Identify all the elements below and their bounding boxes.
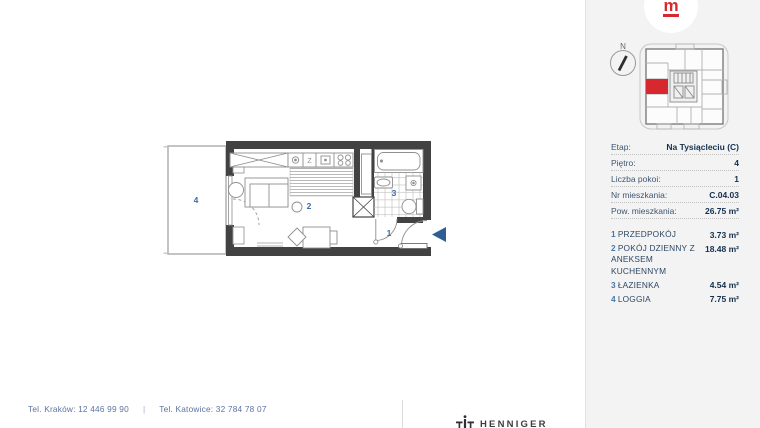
info-row-etap: Etap: Na Tysiącleciu (C) bbox=[611, 139, 739, 155]
henniger-emblem-icon bbox=[455, 415, 475, 428]
room-name: 4LOGGIA bbox=[611, 294, 699, 305]
room-label-hall: 1 bbox=[387, 228, 392, 238]
brand-logo-circle: m bbox=[644, 0, 698, 33]
footer-contacts: Tel. Kraków: 12 446 99 90 | Tel. Katowic… bbox=[28, 404, 267, 414]
phone-krakow: Tel. Kraków: 12 446 99 90 bbox=[28, 404, 129, 414]
info-value: C.04.03 bbox=[709, 190, 739, 200]
room-row: 1PRZEDPOKÓJ 3.73 m² bbox=[611, 229, 739, 240]
apartment-card-page: Z bbox=[0, 0, 760, 428]
stool bbox=[292, 202, 302, 212]
phone-separator: | bbox=[143, 404, 145, 414]
info-row-nr-mieszkania: Nr mieszkania: C.04.03 bbox=[611, 187, 739, 203]
sofa bbox=[245, 178, 288, 207]
toilet bbox=[402, 199, 423, 214]
info-row-pow-mieszkania: Pow. mieszkania: 26.75 m² bbox=[611, 203, 739, 219]
kitchen-annex-floor bbox=[290, 168, 353, 196]
wardrobe bbox=[230, 153, 288, 167]
info-label: Liczba pokoi: bbox=[611, 174, 661, 184]
room-number: 1 bbox=[611, 229, 616, 239]
desk bbox=[303, 227, 337, 248]
washbasin bbox=[375, 177, 393, 188]
threshold-lines bbox=[257, 243, 283, 246]
room-name: 1PRZEDPOKÓJ bbox=[611, 229, 699, 240]
info-panel: m N bbox=[585, 0, 760, 428]
room-number: 3 bbox=[611, 280, 616, 290]
floor-plan: Z bbox=[160, 128, 460, 268]
phone-katowice: Tel. Katowice: 32 784 78 07 bbox=[159, 404, 266, 414]
room-number: 2 bbox=[611, 243, 616, 253]
kitchen-sink-label: Z bbox=[307, 158, 312, 165]
info-value: 26.75 m² bbox=[705, 206, 739, 216]
bathtub bbox=[375, 150, 424, 173]
info-label: Pow. mieszkania: bbox=[611, 206, 677, 216]
room-name: 3ŁAZIENKA bbox=[611, 280, 699, 291]
bathroom-door bbox=[374, 219, 397, 244]
info-value: 1 bbox=[734, 174, 739, 184]
building-site-plan: N bbox=[594, 36, 736, 134]
room-name: 2POKÓJ DZIENNY Z ANEKSEM KUCHENNYM bbox=[611, 243, 699, 277]
highlighted-unit bbox=[646, 79, 668, 94]
room-area: 3.73 m² bbox=[710, 229, 739, 240]
henniger-logo: HENNIGER bbox=[455, 415, 548, 428]
room-row: 3ŁAZIENKA 4.54 m² bbox=[611, 280, 739, 291]
room-label-living: 2 bbox=[307, 201, 312, 211]
room-area: 7.75 m² bbox=[710, 294, 739, 305]
entrance-door bbox=[398, 221, 427, 249]
kitchen-counter bbox=[288, 153, 353, 167]
washing-machine bbox=[406, 176, 421, 190]
room-area: 4.54 m² bbox=[710, 280, 739, 291]
room-label-loggia: 4 bbox=[194, 195, 199, 205]
info-label: Piętro: bbox=[611, 158, 636, 168]
dining-table bbox=[229, 183, 244, 198]
brand-logo-letter: m bbox=[644, 0, 698, 12]
apartment-info-table: Etap: Na Tysiącleciu (C) Piętro: 4 Liczb… bbox=[611, 139, 739, 219]
info-row-liczba-pokoi: Liczba pokoi: 1 bbox=[611, 171, 739, 187]
info-row-pietro: Piętro: 4 bbox=[611, 155, 739, 171]
room-area: 18.48 m² bbox=[705, 243, 739, 254]
room-number: 4 bbox=[611, 294, 616, 304]
compass-icon: N bbox=[611, 42, 636, 76]
building-core bbox=[670, 71, 697, 102]
brand-logo-underline bbox=[663, 14, 679, 17]
room-label-bath: 3 bbox=[392, 188, 397, 198]
room-row: 4LOGGIA 7.75 m² bbox=[611, 294, 739, 305]
vent-shaft bbox=[353, 197, 374, 217]
info-value: Na Tysiącleciu (C) bbox=[666, 142, 739, 152]
room-row: 2POKÓJ DZIENNY Z ANEKSEM KUCHENNYM 18.48… bbox=[611, 243, 739, 277]
henniger-wordmark: HENNIGER bbox=[480, 419, 548, 428]
compass-north-label: N bbox=[620, 42, 626, 51]
room-list: 1PRZEDPOKÓJ 3.73 m² 2POKÓJ DZIENNY Z ANE… bbox=[611, 229, 739, 308]
info-label: Nr mieszkania: bbox=[611, 190, 667, 200]
fridge bbox=[362, 154, 372, 194]
footer-divider bbox=[402, 400, 403, 428]
info-label: Etap: bbox=[611, 142, 631, 152]
info-value: 4 bbox=[734, 158, 739, 168]
entrance-arrow-icon bbox=[432, 227, 446, 242]
